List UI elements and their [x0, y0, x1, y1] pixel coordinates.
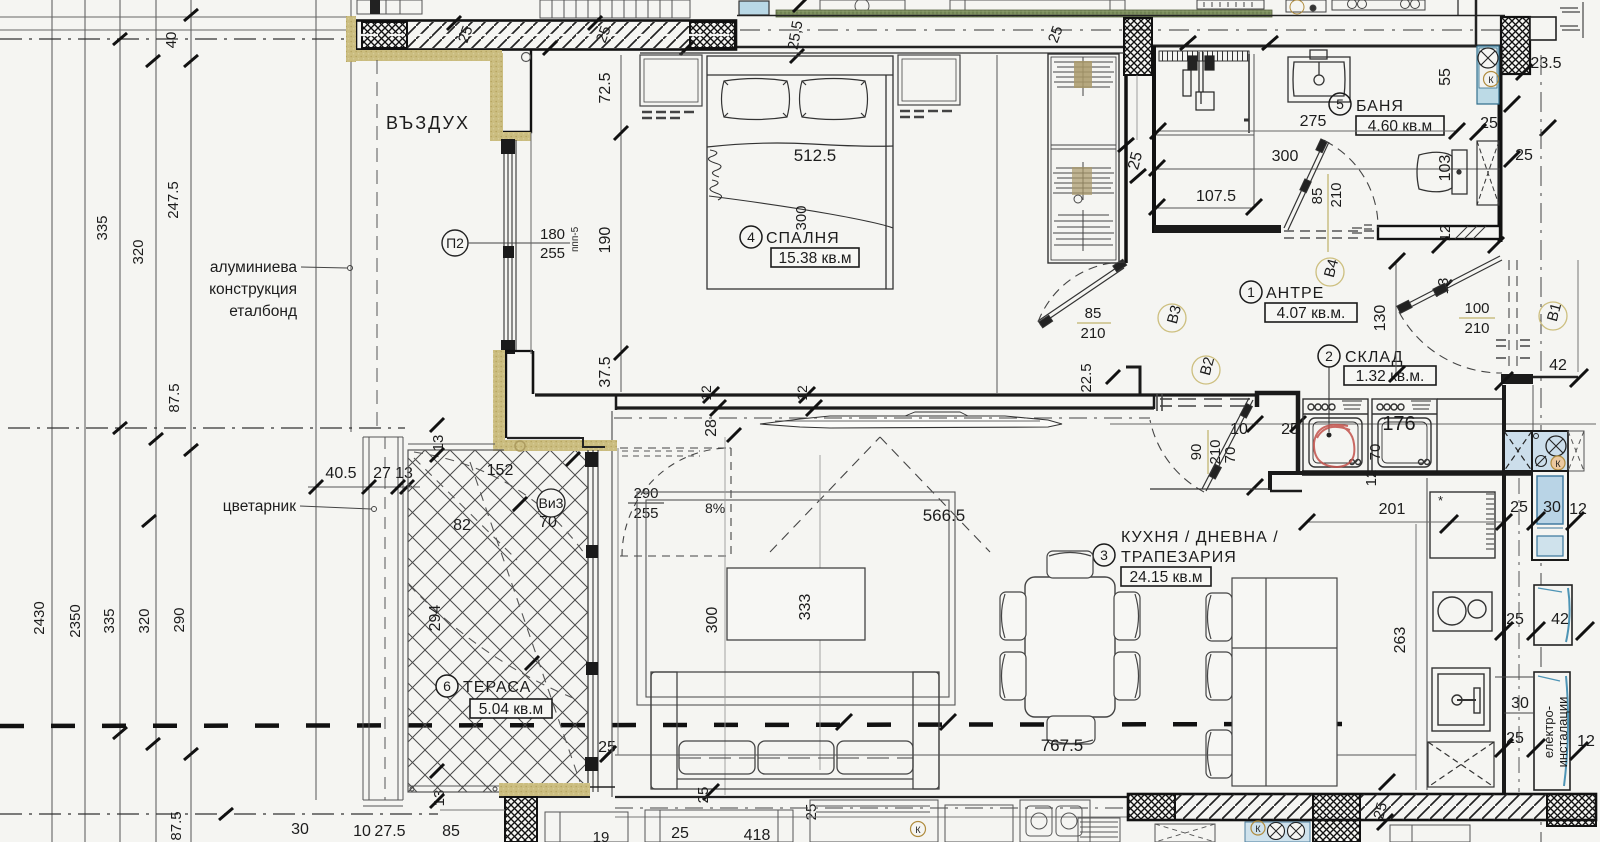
svg-text:82: 82: [453, 517, 471, 534]
svg-text:К: К: [1488, 75, 1494, 85]
svg-text:27: 27: [373, 465, 391, 482]
svg-text:5.04 кв.м: 5.04 кв.м: [479, 701, 543, 718]
svg-text:335: 335: [101, 608, 118, 633]
svg-text:333: 333: [797, 594, 814, 621]
svg-text:255: 255: [540, 245, 565, 262]
svg-text:4.07 кв.м.: 4.07 кв.м.: [1277, 305, 1346, 322]
svg-text:418: 418: [744, 827, 771, 842]
svg-text:25: 25: [695, 787, 712, 804]
svg-text:300: 300: [704, 607, 721, 634]
svg-text:190: 190: [597, 227, 614, 254]
svg-text:ВЪЗДУХ: ВЪЗДУХ: [386, 113, 470, 133]
svg-text:ппп-5: ппп-5: [570, 226, 581, 252]
svg-text:335: 335: [94, 215, 111, 240]
svg-text:70: 70: [1367, 444, 1384, 461]
svg-text:72.5: 72.5: [597, 72, 614, 103]
svg-text:6: 6: [443, 678, 451, 694]
svg-text:30: 30: [291, 821, 309, 838]
svg-text:К: К: [915, 825, 921, 835]
svg-text:566.5: 566.5: [923, 506, 966, 525]
svg-text:320: 320: [136, 608, 153, 633]
svg-text:25: 25: [1515, 147, 1533, 164]
svg-text:30: 30: [1543, 499, 1561, 516]
svg-text:40: 40: [163, 32, 180, 49]
svg-text:АНТРЕ: АНТРЕ: [1266, 285, 1324, 302]
svg-text:103: 103: [1437, 155, 1454, 182]
svg-text:19: 19: [593, 829, 610, 842]
svg-text:85: 85: [442, 823, 460, 840]
svg-text:електро-: електро-: [1541, 706, 1556, 758]
svg-text:90: 90: [1188, 444, 1205, 461]
svg-text:294: 294: [427, 605, 444, 632]
svg-text:300: 300: [1272, 148, 1299, 165]
svg-text:2: 2: [1325, 348, 1333, 364]
svg-text:210: 210: [1080, 325, 1105, 342]
svg-text:10: 10: [1230, 421, 1248, 438]
svg-text:25: 25: [598, 739, 616, 756]
svg-text:263: 263: [1392, 627, 1409, 654]
svg-text:К: К: [1255, 824, 1261, 834]
svg-text:27.5: 27.5: [374, 823, 405, 840]
svg-text:87.5: 87.5: [168, 811, 185, 840]
svg-text:5: 5: [1336, 96, 1344, 112]
svg-text:176: 176: [1382, 413, 1415, 435]
svg-text:275: 275: [1300, 113, 1327, 130]
svg-text:конструкция: конструкция: [209, 281, 297, 298]
svg-text:БАНЯ: БАНЯ: [1356, 98, 1404, 115]
svg-text:152: 152: [487, 462, 514, 479]
svg-text:40.5: 40.5: [325, 465, 356, 482]
svg-text:12: 12: [1569, 501, 1587, 518]
svg-text:290: 290: [171, 607, 188, 632]
svg-text:55: 55: [1437, 68, 1454, 86]
svg-text:201: 201: [1379, 501, 1406, 518]
svg-text:П2: П2: [446, 235, 464, 251]
svg-text:28: 28: [703, 419, 720, 437]
svg-text:Ви3: Ви3: [539, 495, 564, 511]
svg-text:алуминиева: алуминиева: [210, 259, 297, 276]
svg-text:цветарник: цветарник: [223, 498, 296, 515]
svg-text:3: 3: [1100, 547, 1108, 563]
svg-text:СПАЛНЯ: СПАЛНЯ: [766, 230, 840, 247]
svg-text:210: 210: [1464, 320, 1489, 337]
svg-text:210: 210: [1328, 182, 1345, 207]
svg-text:12: 12: [698, 385, 714, 401]
svg-text:22.5: 22.5: [1078, 363, 1095, 392]
svg-text:85: 85: [1309, 188, 1326, 205]
svg-text:247.5: 247.5: [165, 181, 182, 219]
svg-text:инсталации: инсталации: [1555, 697, 1570, 768]
svg-text:1: 1: [1247, 284, 1255, 300]
svg-text:10: 10: [353, 823, 371, 840]
svg-text:К: К: [1555, 459, 1561, 469]
svg-text:130: 130: [1372, 305, 1389, 332]
svg-text:23.5: 23.5: [1530, 55, 1561, 72]
svg-text:4: 4: [747, 229, 755, 245]
svg-text:25: 25: [1480, 115, 1498, 132]
svg-text:30: 30: [1511, 695, 1529, 712]
svg-text:70: 70: [1222, 447, 1239, 464]
svg-text:320: 320: [130, 239, 147, 264]
svg-text:ТРАПЕЗАРИЯ: ТРАПЕЗАРИЯ: [1121, 549, 1237, 566]
svg-text:2430: 2430: [31, 601, 48, 634]
svg-text:42: 42: [1551, 611, 1569, 628]
svg-text:ТЕРАСА: ТЕРАСА: [463, 679, 531, 696]
svg-text:767.5: 767.5: [1041, 736, 1084, 755]
svg-text:15.38 кв.м: 15.38 кв.м: [778, 250, 851, 267]
svg-text:24.15 кв.м: 24.15 кв.м: [1129, 569, 1202, 586]
svg-text:4.60 кв.м: 4.60 кв.м: [1368, 118, 1432, 135]
svg-text:100: 100: [1464, 300, 1489, 317]
svg-text:180: 180: [540, 226, 565, 243]
svg-text:2350: 2350: [67, 604, 84, 637]
svg-text:512.5: 512.5: [794, 146, 837, 165]
svg-text:87.5: 87.5: [166, 383, 183, 412]
svg-text:*: *: [1438, 493, 1443, 508]
svg-text:25: 25: [671, 825, 689, 842]
svg-text:КУХНЯ / ДНЕВНА /: КУХНЯ / ДНЕВНА /: [1121, 529, 1279, 546]
svg-text:42: 42: [1549, 357, 1567, 374]
svg-text:12: 12: [1577, 733, 1595, 750]
svg-text:еталбонд: еталбонд: [229, 303, 297, 320]
svg-text:8%: 8%: [705, 500, 725, 516]
svg-text:37.5: 37.5: [597, 356, 614, 387]
svg-text:107.5: 107.5: [1196, 188, 1236, 205]
svg-text:300: 300: [793, 205, 810, 230]
svg-text:СКЛАД: СКЛАД: [1345, 349, 1403, 366]
svg-text:12: 12: [794, 385, 810, 401]
svg-text:85: 85: [1085, 305, 1102, 322]
